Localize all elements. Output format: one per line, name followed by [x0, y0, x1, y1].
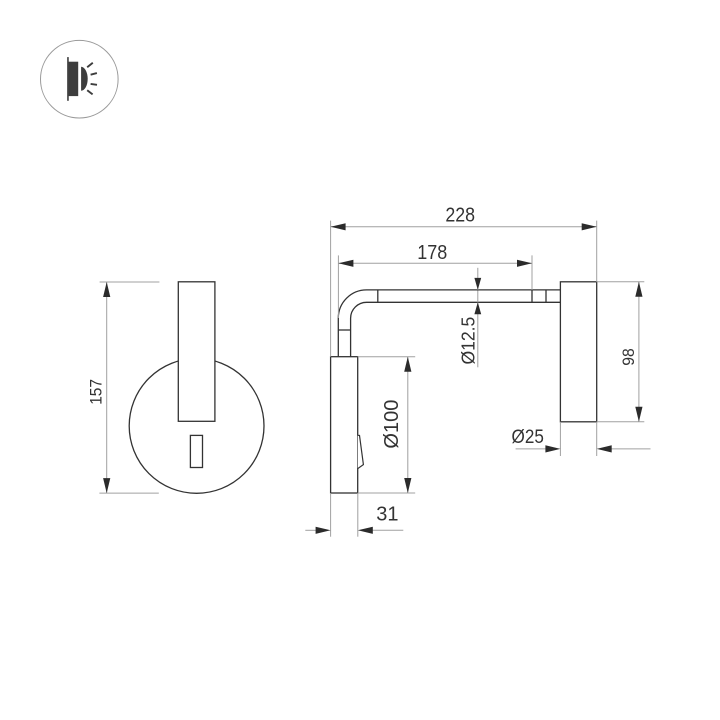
- svg-text:Ø100: Ø100: [381, 400, 403, 449]
- svg-text:228: 228: [445, 205, 475, 227]
- svg-text:157: 157: [87, 379, 106, 405]
- svg-text:31: 31: [376, 504, 398, 526]
- svg-text:178: 178: [417, 242, 447, 264]
- svg-text:98: 98: [620, 348, 639, 365]
- svg-text:Ø25: Ø25: [512, 426, 544, 447]
- svg-text:Ø12.5: Ø12.5: [458, 317, 479, 365]
